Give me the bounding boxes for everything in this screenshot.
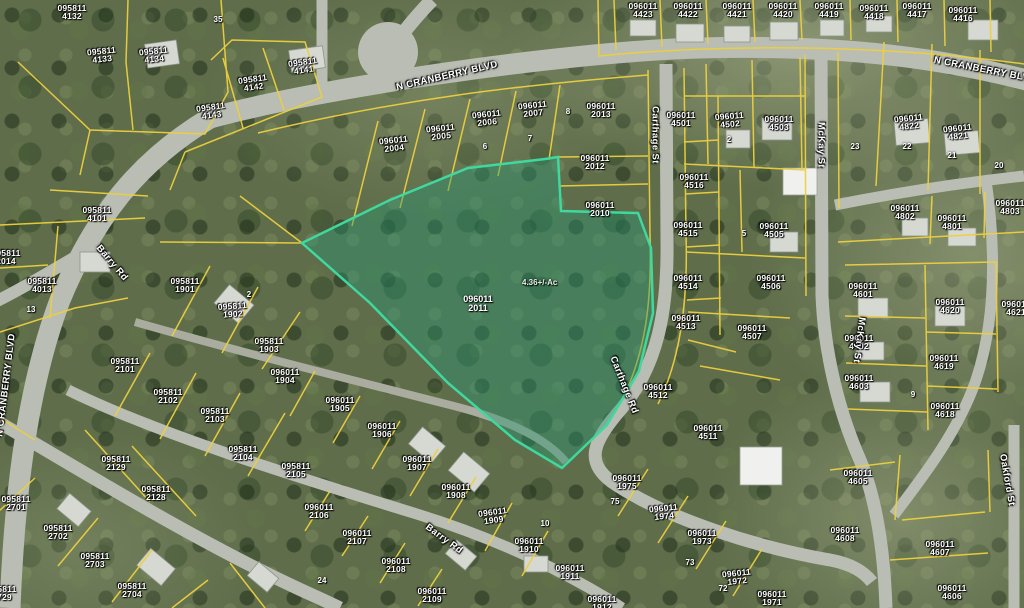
aerial-parcel-map: 096011 2011 4.36+/-Ac 095811413209581141… (0, 0, 1024, 608)
highlight-layer (0, 0, 1024, 608)
highlighted-parcel-area-label: 4.36+/-Ac (522, 278, 557, 287)
highlighted-parcel-id-line2: 2011 (448, 304, 508, 313)
highlighted-parcel-label: 096011 2011 (448, 295, 508, 312)
